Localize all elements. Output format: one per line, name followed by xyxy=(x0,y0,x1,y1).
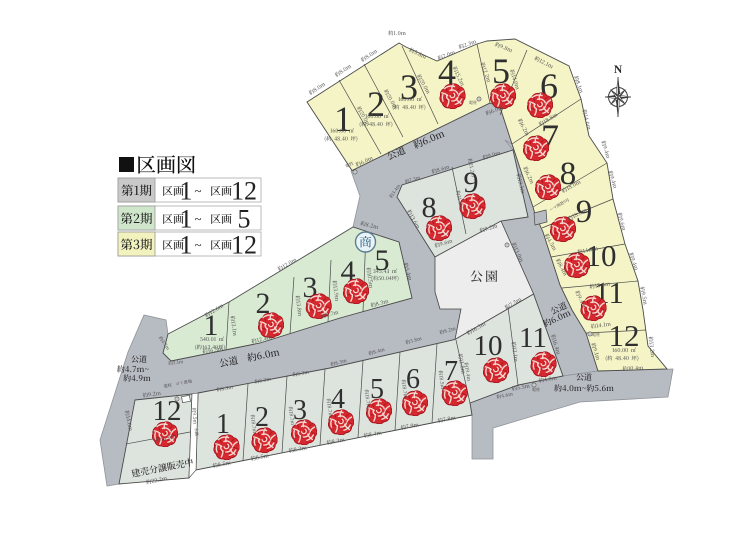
svg-text:8: 8 xyxy=(560,156,577,192)
svg-text:5: 5 xyxy=(238,205,251,234)
svg-text:10: 10 xyxy=(474,330,503,362)
svg-text:12: 12 xyxy=(609,318,640,353)
svg-text:11: 11 xyxy=(519,322,547,354)
svg-text:1: 1 xyxy=(180,231,193,260)
svg-text:12: 12 xyxy=(231,177,257,206)
svg-text:9: 9 xyxy=(576,194,593,230)
svg-text:10: 10 xyxy=(586,238,617,273)
svg-text:~: ~ xyxy=(194,211,201,226)
svg-text:5: 5 xyxy=(375,244,390,277)
svg-text:N: N xyxy=(614,64,623,76)
svg-text:1: 1 xyxy=(180,177,193,206)
svg-text:12: 12 xyxy=(231,231,257,260)
svg-text:2: 2 xyxy=(367,84,385,124)
svg-text:1: 1 xyxy=(180,205,193,234)
svg-text:~: ~ xyxy=(194,183,201,198)
svg-text:~: ~ xyxy=(194,237,201,252)
svg-text:1: 1 xyxy=(334,99,352,139)
svg-text:3: 3 xyxy=(400,67,418,107)
